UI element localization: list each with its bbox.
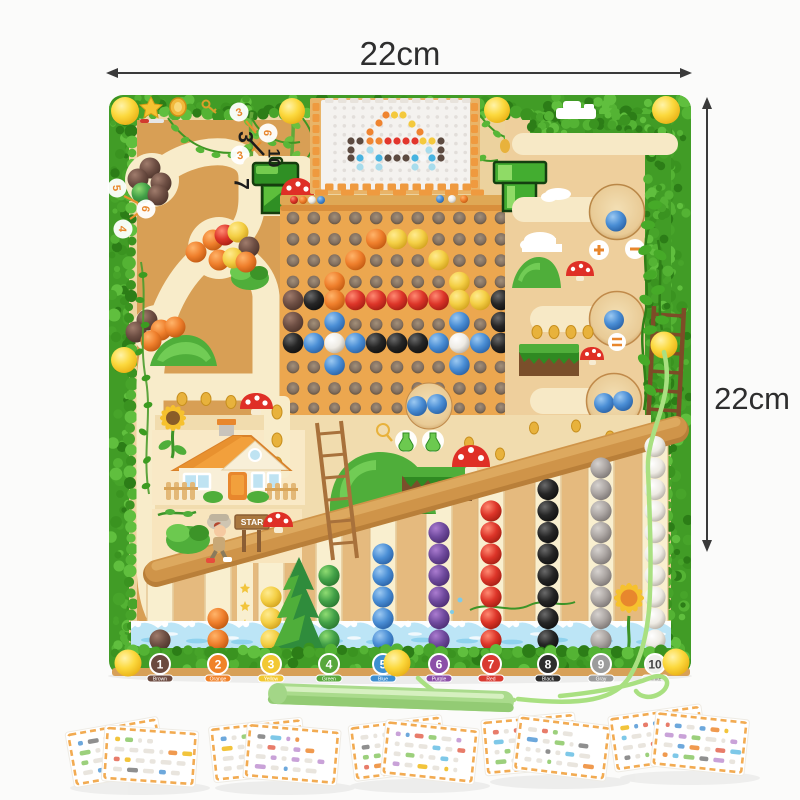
svg-text:Green: Green <box>322 677 336 683</box>
svg-text:STAR: STAR <box>241 517 264 527</box>
svg-text:10: 10 <box>648 658 662 672</box>
svg-text:8: 8 <box>545 658 552 672</box>
svg-text:Gray: Gray <box>596 677 607 683</box>
svg-text:6: 6 <box>261 129 273 136</box>
svg-text:2: 2 <box>215 658 222 672</box>
svg-text:Red: Red <box>486 677 495 683</box>
svg-text:Orange: Orange <box>210 677 227 683</box>
svg-text:6: 6 <box>436 658 443 672</box>
svg-text:Purple: Purple <box>432 677 447 683</box>
svg-text:4: 4 <box>326 658 333 672</box>
svg-text:7: 7 <box>229 178 252 190</box>
svg-text:Blue: Blue <box>378 677 388 683</box>
svg-text:5: 5 <box>110 185 122 192</box>
svg-text:7: 7 <box>488 658 495 672</box>
svg-text:1: 1 <box>157 658 164 672</box>
svg-text:10: 10 <box>265 149 284 168</box>
svg-text:Yellow: Yellow <box>264 677 279 683</box>
svg-text:22cm: 22cm <box>714 381 790 416</box>
svg-text:3: 3 <box>233 131 256 143</box>
svg-text:Brown: Brown <box>153 677 167 683</box>
svg-text:Black: Black <box>542 677 555 683</box>
svg-text:9: 9 <box>598 658 605 672</box>
svg-text:22cm: 22cm <box>360 35 441 72</box>
svg-text:3: 3 <box>268 658 275 672</box>
